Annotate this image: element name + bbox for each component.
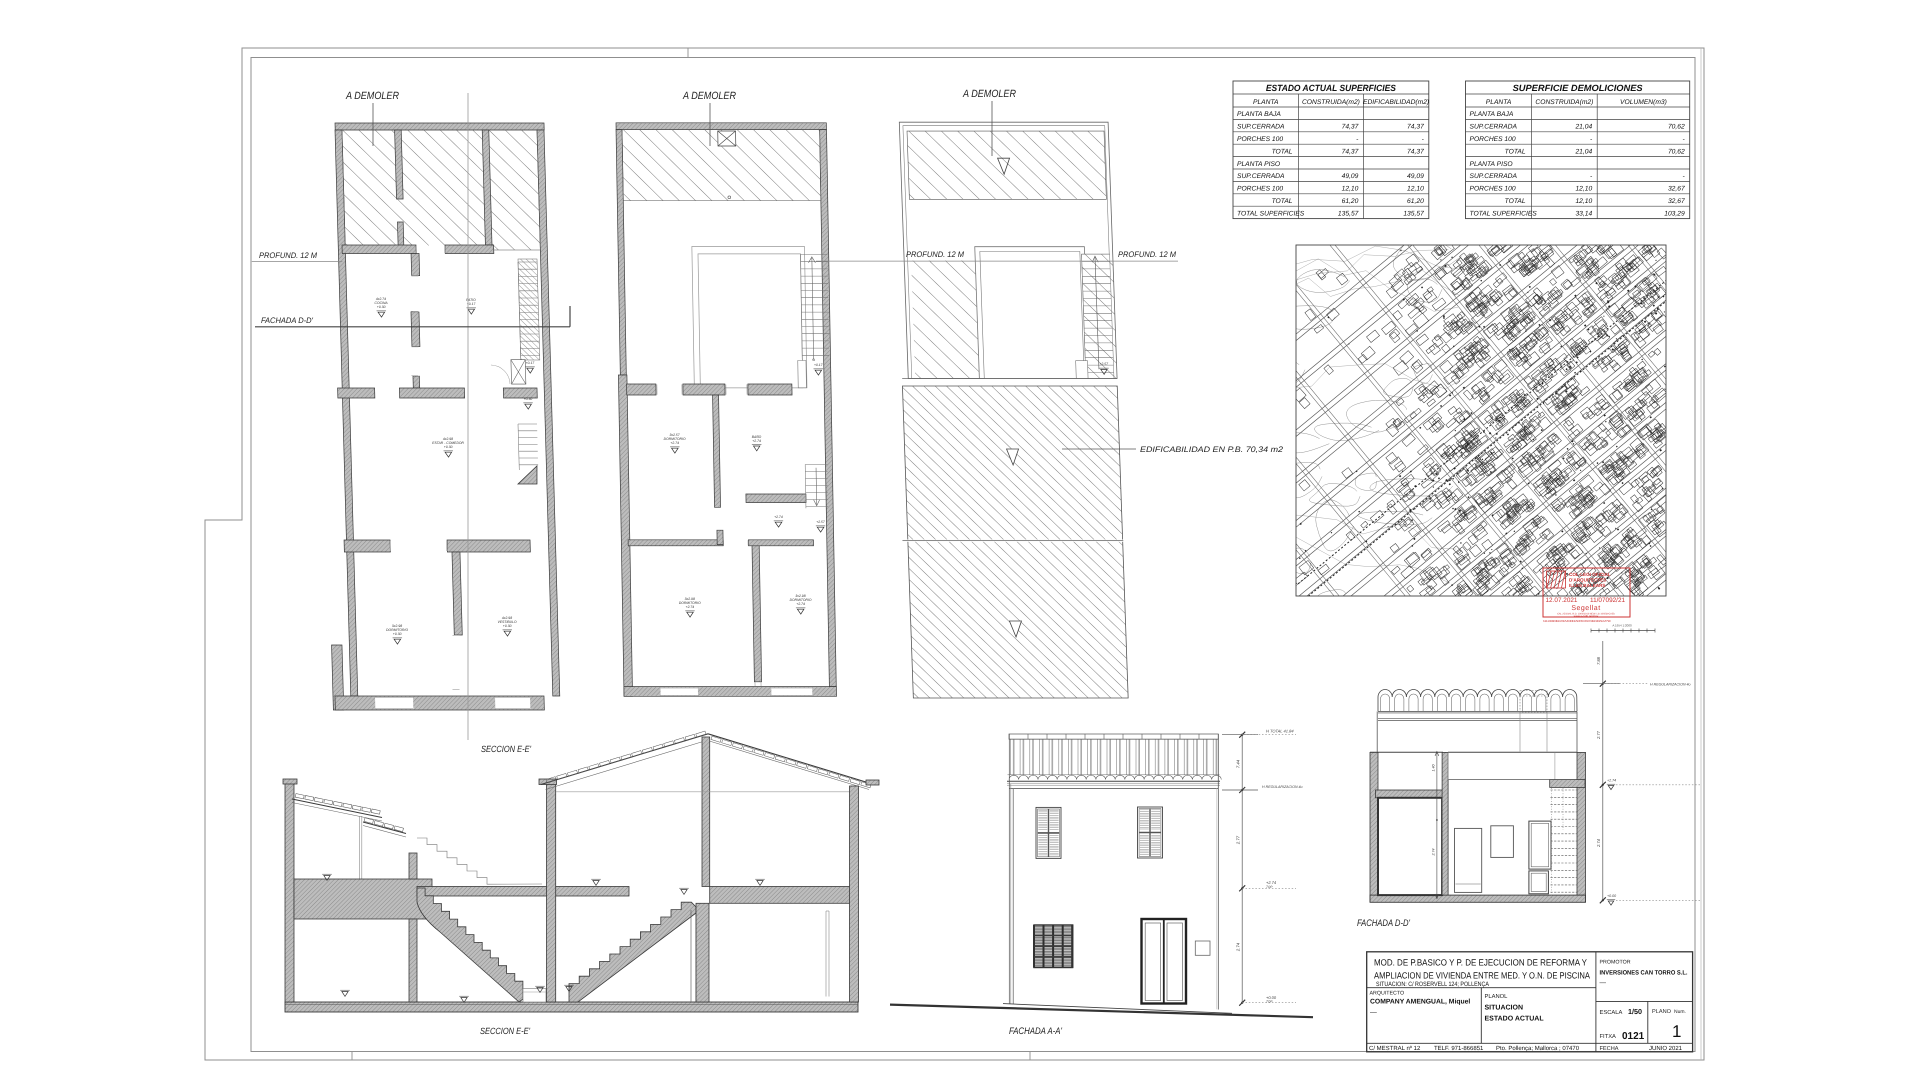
svg-text:32,67: 32,67 xyxy=(1668,198,1685,205)
svg-text:PROFUND. 12 M: PROFUND. 12 M xyxy=(906,250,964,259)
svg-text:PROFUND. 12 M: PROFUND. 12 M xyxy=(259,251,317,260)
svg-text:PORCHES 100: PORCHES 100 xyxy=(1470,186,1516,193)
svg-text:COL·LEGI OFICIAL: COL·LEGI OFICIAL xyxy=(1569,572,1611,577)
svg-text:61,20: 61,20 xyxy=(1407,198,1424,205)
svg-text:+2.74: +2.74 xyxy=(752,439,761,443)
svg-text:7.88: 7.88 xyxy=(1596,656,1601,665)
svg-text:2.77: 2.77 xyxy=(1596,730,1601,740)
svg-text:TOTAL SUPERFICIES: TOTAL SUPERFICIES xyxy=(1237,210,1305,217)
svg-text:SUP.CERRADA: SUP.CERRADA xyxy=(1237,124,1285,131)
svg-text:H TOTAL 41.84: H TOTAL 41.84 xyxy=(1266,729,1294,734)
svg-text:70,62: 70,62 xyxy=(1668,148,1685,155)
svg-text:FACHADA A-A': FACHADA A-A' xyxy=(1009,1026,1063,1037)
svg-text:www.e-coib.org/cov: www.e-coib.org/cov xyxy=(1574,615,1599,618)
svg-text:+2.57: +2.57 xyxy=(1099,362,1108,366)
svg-text:PLANTA BAJA: PLANTA BAJA xyxy=(1470,111,1514,118)
svg-text:SITUACION: C/ ROSERVELL 124; P: SITUACION: C/ ROSERVELL 124; POLLENÇA xyxy=(1376,981,1490,988)
svg-text:135,57: 135,57 xyxy=(1338,210,1359,217)
svg-text:74,37: 74,37 xyxy=(1342,148,1359,155)
svg-text:0121: 0121 xyxy=(1622,1031,1645,1042)
svg-text:TOTAL: TOTAL xyxy=(1505,198,1526,205)
svg-text:+0.30: +0.30 xyxy=(503,624,512,628)
svg-text:PLANTA BAJA: PLANTA BAJA xyxy=(1237,111,1281,118)
svg-text:ESTADO ACTUAL SUPERFICIES: ESTADO ACTUAL SUPERFICIES xyxy=(1266,83,1396,93)
svg-text:SITUACION: SITUACION xyxy=(1485,1005,1524,1012)
svg-text:TOP: TOP xyxy=(1266,1000,1273,1004)
svg-text:TOTAL: TOTAL xyxy=(1272,198,1293,205)
svg-text:70,62: 70,62 xyxy=(1668,124,1685,131)
svg-text:A 1954 1:2000: A 1954 1:2000 xyxy=(1612,624,1632,628)
svg-text:FACHADA D-D': FACHADA D-D' xyxy=(1357,918,1411,929)
svg-text:PLANTA: PLANTA xyxy=(1486,99,1512,106)
svg-text:A DEMOLER: A DEMOLER xyxy=(345,90,399,102)
svg-text:PLANTA PISO: PLANTA PISO xyxy=(1470,161,1514,168)
svg-text:SUP.CERRADA: SUP.CERRADA xyxy=(1237,173,1285,180)
svg-text:PLANTA: PLANTA xyxy=(1253,99,1279,106)
svg-text:+2.74: +2.74 xyxy=(670,441,679,445)
svg-text:COMPANY AMENGUAL, Miquel: COMPANY AMENGUAL, Miquel xyxy=(1370,999,1470,1006)
svg-text:PROFUND. 12 M: PROFUND. 12 M xyxy=(1118,250,1176,259)
svg-text:1.40: 1.40 xyxy=(1432,765,1436,772)
svg-text:49,09: 49,09 xyxy=(1342,173,1359,180)
svg-text:—: — xyxy=(1600,980,1607,987)
svg-text:61,20: 61,20 xyxy=(1342,198,1359,205)
svg-text:33,14: 33,14 xyxy=(1575,210,1592,217)
svg-text:H REGULARIZACION 4o: H REGULARIZACION 4o xyxy=(1262,785,1303,789)
svg-text:ILLES BALEARS: ILLES BALEARS xyxy=(1569,583,1606,588)
svg-text:PLANTA PISO: PLANTA PISO xyxy=(1237,161,1281,168)
svg-text:SECCION E-E': SECCION E-E' xyxy=(480,1026,530,1036)
svg-text:C/ MESTRAL nº 12: C/ MESTRAL nº 12 xyxy=(1369,1045,1421,1052)
svg-text:+0.00: +0.00 xyxy=(1607,894,1616,898)
svg-text:Num.: Num. xyxy=(1674,1009,1686,1015)
svg-text:+0.17: +0.17 xyxy=(526,361,535,365)
svg-text:+0.30: +0.30 xyxy=(393,632,402,636)
svg-text:Pto. Pollença; Mallorca ; 074: Pto. Pollença; Mallorca ; 07470 xyxy=(1496,1045,1580,1052)
svg-text:+2.57: +2.57 xyxy=(816,520,825,524)
svg-text:CONSTRUIDA(m2): CONSTRUIDA(m2) xyxy=(1302,99,1360,106)
svg-text:—: — xyxy=(1370,1009,1377,1016)
svg-text:MOD. DE P.BASICO Y P. DE EJECU: MOD. DE P.BASICO Y P. DE EJECUCION DE RE… xyxy=(1374,958,1587,968)
svg-text:2.74: 2.74 xyxy=(1596,838,1601,848)
svg-text:A DEMOLER: A DEMOLER xyxy=(962,88,1016,100)
svg-text:TOTAL: TOTAL xyxy=(1272,148,1293,155)
svg-text:12,10: 12,10 xyxy=(1407,186,1424,193)
svg-text:PORCHES 100: PORCHES 100 xyxy=(1470,136,1516,143)
svg-text:JUNIO 2021: JUNIO 2021 xyxy=(1649,1045,1683,1052)
svg-text:+0.30: +0.30 xyxy=(524,397,533,401)
svg-text:+0.17: +0.17 xyxy=(814,363,823,367)
svg-text:H REGULARIZACION 4o: H REGULARIZACION 4o xyxy=(1650,683,1691,687)
svg-text:+2.74: +2.74 xyxy=(796,602,805,606)
svg-text:+0.30: +0.30 xyxy=(377,305,386,309)
svg-text:ARQUITECTO: ARQUITECTO xyxy=(1370,991,1405,997)
svg-text:32,67: 32,67 xyxy=(1668,186,1685,193)
svg-text:CONSTRUIDA(m2): CONSTRUIDA(m2) xyxy=(1535,99,1593,106)
svg-text:7.44: 7.44 xyxy=(1236,759,1241,768)
svg-text:74,37: 74,37 xyxy=(1342,124,1359,131)
svg-text:103,29: 103,29 xyxy=(1664,210,1685,217)
svg-text:SECCION E-E': SECCION E-E' xyxy=(481,744,531,754)
svg-text:TOP: TOP xyxy=(1266,885,1273,889)
svg-text:ESTADO ACTUAL: ESTADO ACTUAL xyxy=(1485,1016,1545,1023)
svg-text:Segellat: Segellat xyxy=(1571,604,1600,612)
svg-text:EDIFICABILIDAD(m2): EDIFICABILIDAD(m2) xyxy=(1363,99,1429,106)
svg-text:12,10: 12,10 xyxy=(1575,198,1592,205)
svg-text:74,37: 74,37 xyxy=(1407,148,1424,155)
svg-text:SUP.CERRADA: SUP.CERRADA xyxy=(1470,173,1518,180)
svg-text:2.77: 2.77 xyxy=(1236,835,1241,845)
svg-text:PLANO: PLANO xyxy=(1652,1009,1672,1015)
svg-text:135,57: 135,57 xyxy=(1403,210,1424,217)
svg-text:SUP.CERRADA: SUP.CERRADA xyxy=(1470,124,1518,131)
svg-text:49,09: 49,09 xyxy=(1407,173,1424,180)
svg-text:SUPERFICIE DEMOLICIONES: SUPERFICIE DEMOLICIONES xyxy=(1513,83,1643,93)
svg-text:PORCHES 100: PORCHES 100 xyxy=(1237,136,1283,143)
svg-text:D'ARQUITECTES: D'ARQUITECTES xyxy=(1569,578,1606,583)
svg-text:2.74: 2.74 xyxy=(1432,849,1436,857)
svg-text:VOLUMEN(m3): VOLUMEN(m3) xyxy=(1620,99,1667,106)
svg-text:INVERSIONES CAN TORRO S.L.: INVERSIONES CAN TORRO S.L. xyxy=(1600,970,1688,977)
svg-text:PORCHES 100: PORCHES 100 xyxy=(1237,186,1283,193)
svg-text:A DEMOLER: A DEMOLER xyxy=(682,90,736,102)
svg-text:+2.74: +2.74 xyxy=(1607,779,1616,783)
svg-text:1: 1 xyxy=(1672,1022,1681,1041)
svg-text:21,04: 21,04 xyxy=(1574,148,1592,155)
svg-text:AMPLIACION DE VIVIENDA ENTRE M: AMPLIACION DE VIVIENDA ENTRE MED. Y O.N.… xyxy=(1374,971,1590,981)
svg-text:+2.74: +2.74 xyxy=(774,515,783,519)
svg-text:74,37: 74,37 xyxy=(1407,124,1424,131)
svg-text:12,10: 12,10 xyxy=(1575,186,1592,193)
svg-text:+2.74: +2.74 xyxy=(686,605,695,609)
svg-text:PLANOL: PLANOL xyxy=(1485,993,1509,1000)
svg-text:11/07092/21: 11/07092/21 xyxy=(1590,597,1626,604)
svg-text:TOTAL SUPERFICIES: TOTAL SUPERFICIES xyxy=(1470,210,1538,217)
svg-text:PROMOTOR: PROMOTOR xyxy=(1600,960,1631,966)
svg-text:+0.30: +0.30 xyxy=(444,445,453,449)
svg-text:2.74: 2.74 xyxy=(1236,942,1241,952)
svg-text:TOTAL: TOTAL xyxy=(1505,148,1526,155)
svg-text:12.07.2021: 12.07.2021 xyxy=(1546,597,1578,604)
svg-text:1/50: 1/50 xyxy=(1628,1007,1642,1016)
svg-text:FECHA: FECHA xyxy=(1600,1046,1619,1052)
svg-text:12,10: 12,10 xyxy=(1342,186,1359,193)
svg-text:TELF. 971-866851: TELF. 971-866851 xyxy=(1434,1045,1484,1052)
svg-text:611190B9B11RZAZ0EEZADR0039O9B1: 611190B9B11RZAZ0EEZADR0039O9B19EZ9AZ79F xyxy=(1543,619,1611,623)
svg-text:ESCALA: ESCALA xyxy=(1600,1009,1623,1016)
svg-text:FITXA: FITXA xyxy=(1600,1034,1617,1040)
svg-text:EDIFICABILIDAD EN P.B. 70,34 m: EDIFICABILIDAD EN P.B. 70,34 m2 xyxy=(1140,445,1284,454)
svg-text:FACHADA D-D': FACHADA D-D' xyxy=(261,316,313,325)
svg-text:21,04: 21,04 xyxy=(1574,124,1592,131)
